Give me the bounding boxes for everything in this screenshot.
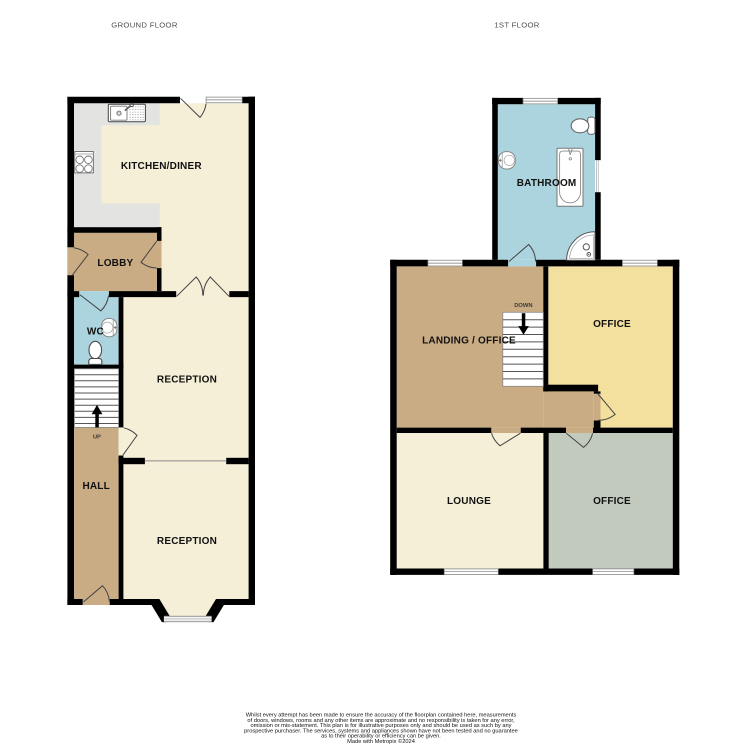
svg-text:KITCHEN/DINER: KITCHEN/DINER (121, 161, 203, 172)
svg-text:RECEPTION: RECEPTION (157, 374, 217, 385)
svg-text:OFFICE: OFFICE (593, 496, 631, 507)
svg-text:Made with Metropix ©2024: Made with Metropix ©2024 (347, 738, 415, 745)
svg-text:1ST FLOOR: 1ST FLOOR (494, 21, 539, 30)
svg-text:HALL: HALL (82, 481, 109, 492)
svg-text:DOWN: DOWN (514, 303, 532, 309)
svg-text:OFFICE: OFFICE (593, 319, 631, 330)
svg-text:BATHROOM: BATHROOM (517, 178, 577, 189)
svg-text:GROUND FLOOR: GROUND FLOOR (111, 21, 178, 30)
svg-text:LOUNGE: LOUNGE (447, 496, 491, 507)
svg-text:UP: UP (93, 435, 101, 441)
svg-text:LOBBY: LOBBY (97, 258, 133, 269)
svg-text:WC: WC (87, 326, 104, 337)
svg-text:RECEPTION: RECEPTION (157, 536, 217, 547)
svg-text:LANDING / OFFICE: LANDING / OFFICE (422, 336, 516, 347)
